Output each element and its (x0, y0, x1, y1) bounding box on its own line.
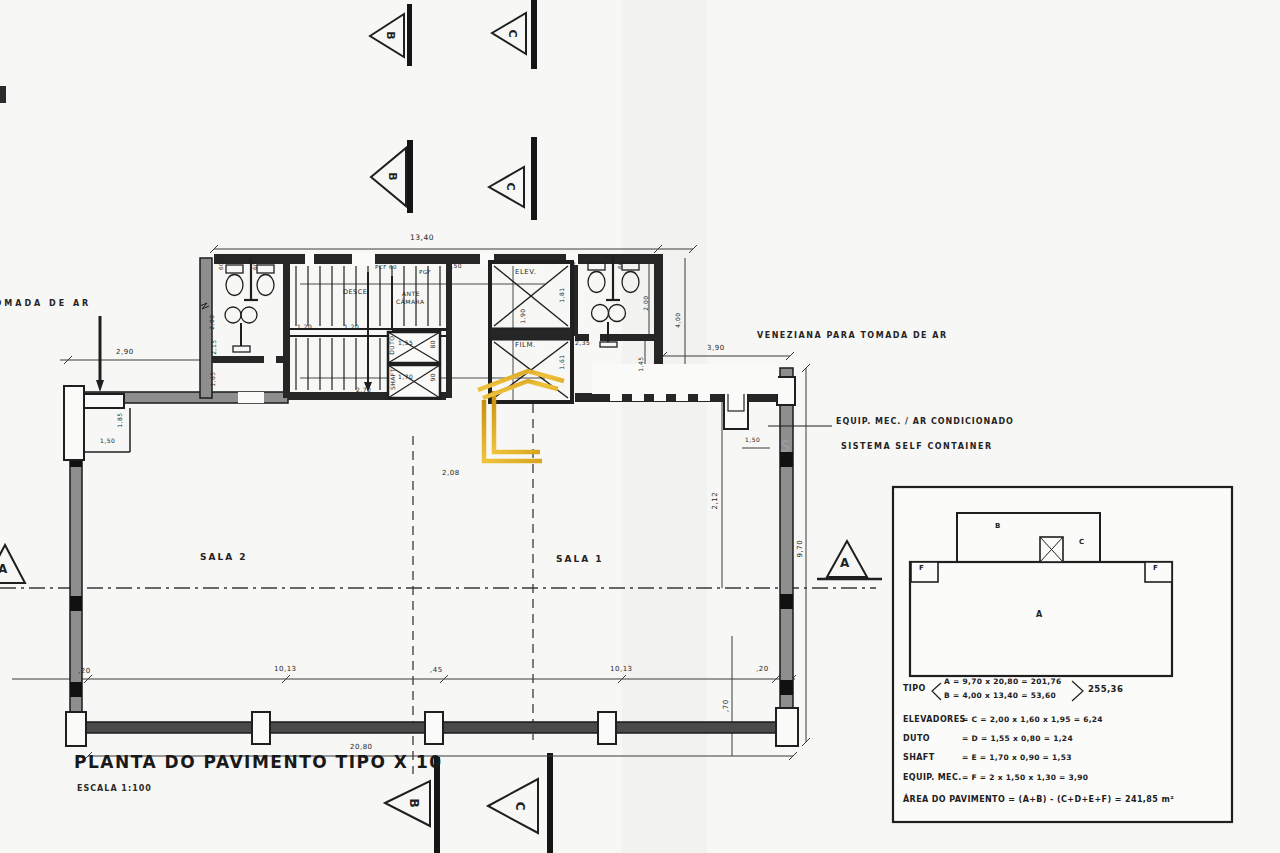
floor-plan-scan: PLANTA DO PAVIMENTO TIPO X 10 ESCALA 1:1… (0, 0, 1280, 853)
dim-bot-45: ,45 (430, 667, 443, 674)
marker-c-top2: C (504, 175, 516, 199)
dim-wc-60-a: 60 (219, 246, 225, 286)
drawing-scale: ESCALA 1:100 (77, 785, 152, 793)
legend-box (893, 487, 1232, 822)
dim-bot-1013r: 10,13 (610, 666, 633, 673)
legend-tipo-total: 255,36 (1088, 685, 1123, 694)
stair-desce-label: DESCE (343, 289, 367, 296)
room-label-elev: ELEV. (514, 269, 537, 276)
dim-wc-60-c: 60 (571, 245, 577, 285)
legend-diagram-f-right: F (1153, 565, 1158, 572)
dim-elev-235: 2,35 (575, 340, 590, 346)
dim-elev-190: 1,90 (520, 296, 526, 336)
dim-stair-120b: 1,20 (344, 324, 359, 330)
dim-bot-20l: ,20 (78, 668, 91, 675)
dim-right-400: 4,00 (675, 300, 681, 340)
shaft-label: SHAFT (390, 359, 396, 399)
dim-duto-155: 1,55 (398, 340, 413, 346)
dim-bot-2080: 20,80 (350, 744, 373, 751)
legend-row-duto-label: DUTO (903, 735, 930, 743)
dim-stair-270: 2,70 (356, 387, 371, 393)
plan-linework (0, 0, 1280, 853)
legend-diagram-b: B (995, 523, 1001, 530)
dim-right-200: 2,00 (643, 283, 649, 323)
legend-row-shaft-value: = E = 1,70 x 0,90 = 1,53 (962, 754, 1072, 762)
dim-elev-181: 1,81 (559, 275, 565, 315)
dim-left-185: 1,85 (117, 400, 123, 440)
dim-elev-161: 1,61 (559, 342, 565, 382)
legend-row-elevadores-value: = C = 2,00 x 1,60 x 1,95 = 6,24 (962, 716, 1103, 724)
legend-tipo-b: B = 4,00 x 13,40 = 53,60 (944, 692, 1056, 700)
legend-row-equip-label: EQUIP. MEC. (903, 774, 962, 782)
marker-b-top2: B (386, 165, 398, 189)
marker-b-top1: B (384, 24, 396, 48)
legend-area-line: ÁREA DO PAVIMENTO = (A+B) - (C+D+E+F) = … (903, 796, 1174, 804)
legend-diagram-c: C (1079, 539, 1085, 546)
ante-label: ANTE (402, 291, 420, 297)
dim-right-145: 1,45 (638, 344, 644, 384)
dim-wall-165: 1,65 (210, 359, 216, 399)
legend-diagram-f-left: F (919, 565, 924, 572)
dim-shaft-90: 90 (430, 357, 436, 397)
dim-wc-60-d: 60 (618, 245, 624, 285)
drawing-title: PLANTA DO PAVIMENTO TIPO X 10 (74, 754, 443, 772)
marker-c-bottom: C (514, 794, 527, 818)
note-equip-mec: EQUIP. MEC. / AR CONDICIONADO (836, 418, 1014, 426)
watermark-text-remnant: S (780, 440, 791, 456)
legend-row-duto-value: = D = 1,55 x 0,80 = 1,24 (962, 735, 1073, 743)
dim-right-212: 2,12 (712, 481, 719, 521)
dim-bot-20r: ,20 (756, 666, 769, 673)
dim-left-150: 1,50 (100, 438, 115, 444)
note-veneziana: VENEZIANA PARA TOMADA DE AR (757, 332, 948, 340)
door-pcf60-label: PCF 60 (375, 265, 397, 271)
dim-mid-208: 2,08 (442, 470, 460, 477)
room-label-sala2: SALA 2 (200, 553, 248, 562)
dim-wc-60-b: 60 (253, 246, 259, 286)
dim-shaft-170: 1,70 (398, 374, 413, 380)
legend-row-elevadores-label: ELEVADORES (903, 716, 966, 724)
marker-c-top1: C (506, 22, 518, 46)
dim-top-width: 13,40 (410, 234, 434, 242)
dim-right-970: 9,70 (797, 529, 804, 569)
marker-a-left: A (0, 563, 8, 576)
legend-diagram-a: A (1036, 611, 1043, 619)
dim-bot-1013l: 10,13 (274, 666, 297, 673)
legend-row-equip-value: = F = 2 x 1,50 x 1,30 = 3,90 (962, 774, 1088, 782)
dim-right-390: 3,90 (707, 345, 725, 352)
dim-door-50: ,50 (451, 263, 462, 269)
dim-left-290: 2,90 (116, 349, 134, 356)
room-label-film: FILM. (514, 342, 537, 349)
dim-stair-120a: 1,20 (297, 324, 312, 330)
legend-tipo-a: A = 9,70 x 20,80 = 201,76 (944, 678, 1062, 686)
dim-bot-70: ,70 (723, 686, 730, 726)
marker-a-right: A (840, 557, 850, 570)
door-pgf-label: PGF (419, 270, 431, 276)
marker-b-bottom: B (408, 791, 421, 815)
camara-label: CÂMARA (396, 299, 425, 305)
legend-row-shaft-label: SHAFT (903, 754, 935, 762)
dim-right-150: 1,50 (745, 437, 760, 443)
note-tomada-de-ar: TOMADA DE AR (0, 300, 91, 308)
legend-tipo-label: TIPO (903, 685, 926, 693)
room-label-sala1: SALA 1 (556, 555, 604, 564)
note-sistema: SISTEMA SELF CONTAINER (841, 443, 993, 451)
